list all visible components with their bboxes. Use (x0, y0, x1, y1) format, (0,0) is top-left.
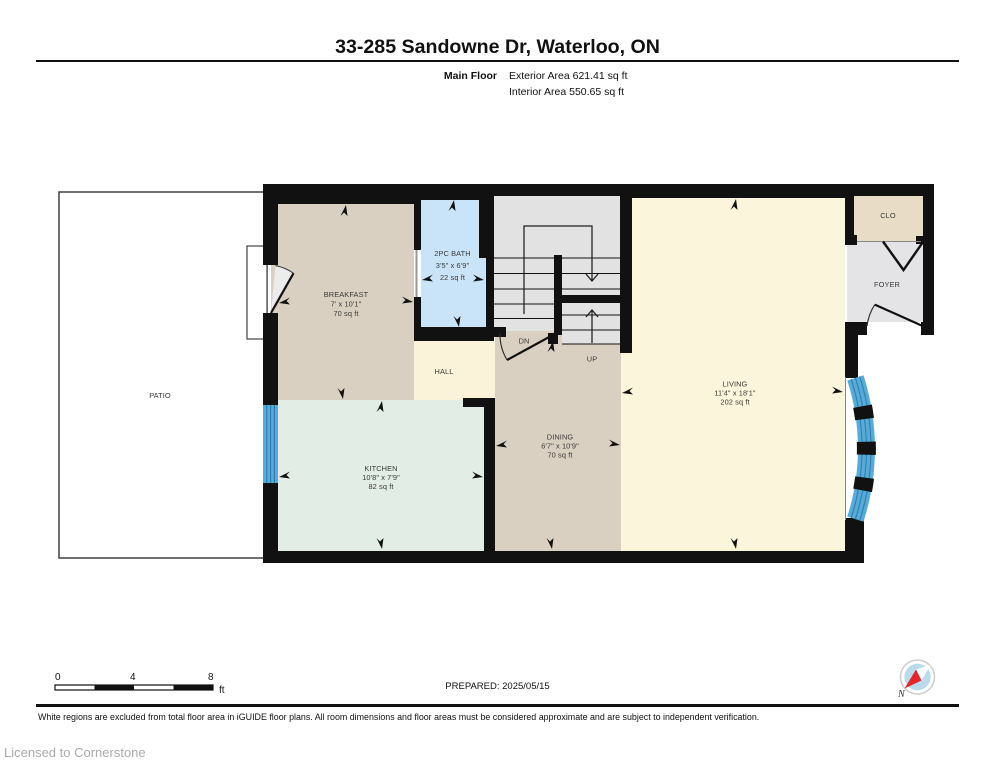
svg-text:FOYER: FOYER (874, 280, 900, 289)
svg-text:70 sq ft: 70 sq ft (547, 451, 572, 460)
svg-text:11'4" x 18'1": 11'4" x 18'1" (714, 389, 756, 398)
svg-text:3'5" x 6'9": 3'5" x 6'9" (436, 261, 470, 270)
svg-text:2PC BATH: 2PC BATH (434, 249, 470, 258)
svg-text:6'7" x 10'9": 6'7" x 10'9" (541, 442, 579, 451)
svg-text:UP: UP (587, 355, 597, 364)
svg-text:202 sq ft: 202 sq ft (720, 398, 749, 407)
svg-text:HALL: HALL (435, 367, 454, 376)
svg-text:DN: DN (519, 337, 530, 346)
svg-text:KITCHEN: KITCHEN (364, 464, 397, 473)
svg-text:BREAKFAST: BREAKFAST (324, 290, 369, 299)
svg-text:LIVING: LIVING (723, 380, 748, 389)
svg-text:DINING: DINING (547, 433, 574, 442)
svg-text:N: N (897, 689, 906, 700)
svg-text:7' x 10'1": 7' x 10'1" (331, 300, 362, 309)
svg-text:82 sq ft: 82 sq ft (368, 482, 393, 491)
svg-text:CLO: CLO (880, 211, 896, 220)
svg-text:10'8" x 7'9": 10'8" x 7'9" (362, 473, 400, 482)
svg-text:PATIO: PATIO (149, 391, 171, 400)
svg-text:22 sq ft: 22 sq ft (440, 273, 465, 282)
svg-text:70 sq ft: 70 sq ft (333, 309, 358, 318)
